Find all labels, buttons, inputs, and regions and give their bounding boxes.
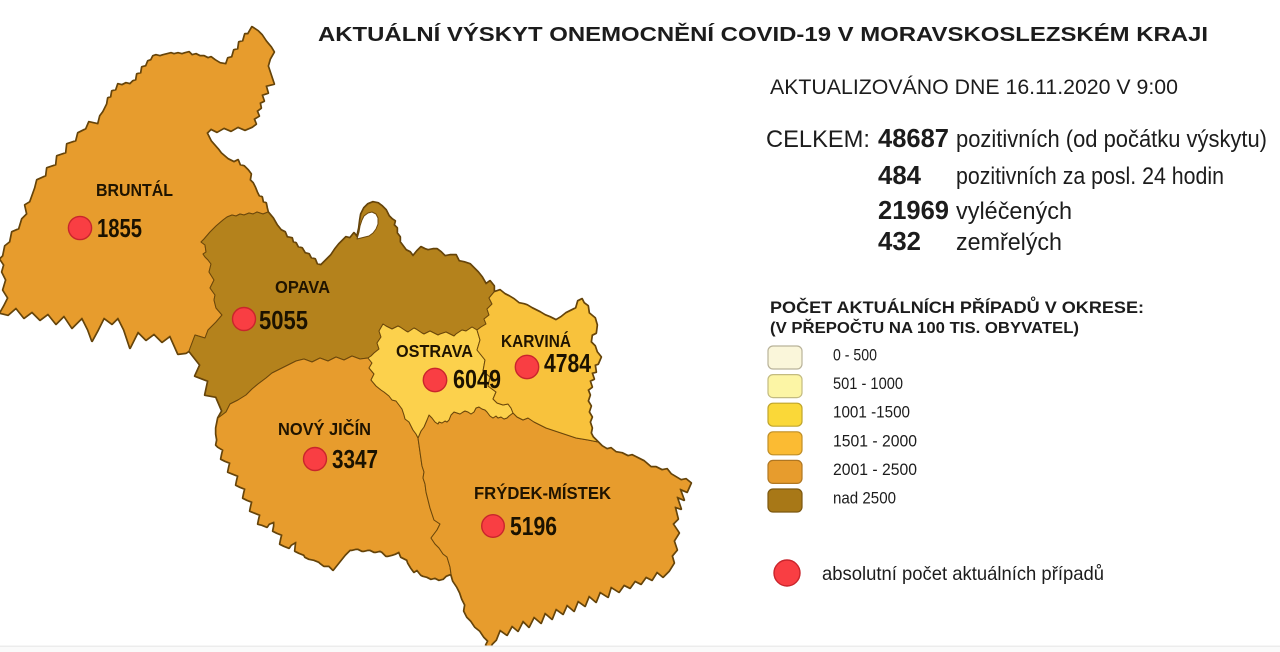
svg-text:OSTRAVA: OSTRAVA: [396, 341, 473, 361]
svg-text:21969: 21969: [878, 195, 949, 225]
svg-text:vyléčených: vyléčených: [956, 198, 1072, 225]
svg-text:zemřelých: zemřelých: [956, 229, 1062, 256]
svg-text:FRÝDEK-MÍSTEK: FRÝDEK-MÍSTEK: [474, 482, 611, 503]
svg-text:OPAVA: OPAVA: [275, 277, 330, 297]
svg-text:AKTUALIZOVÁNO DNE 16.11.2020 V: AKTUALIZOVÁNO DNE 16.11.2020 V 9:00: [770, 74, 1178, 99]
svg-text:484: 484: [878, 160, 922, 190]
svg-text:4784: 4784: [544, 348, 591, 378]
svg-text:1001 -1500: 1001 -1500: [833, 403, 910, 422]
svg-text:pozitivních (od počátku výskyt: pozitivních (od počátku výskytu): [956, 126, 1267, 153]
svg-text:1855: 1855: [97, 213, 142, 243]
svg-text:432: 432: [878, 226, 921, 256]
svg-text:CELKEM:: CELKEM:: [766, 126, 870, 153]
svg-text:48687: 48687: [878, 123, 949, 153]
svg-text:0 - 500: 0 - 500: [833, 346, 877, 365]
svg-text:pozitivních za posl. 24 hodin: pozitivních za posl. 24 hodin: [956, 163, 1224, 190]
svg-text:POČET AKTUÁLNÍCH PŘÍPADŮ V OKR: POČET AKTUÁLNÍCH PŘÍPADŮ V OKRESE:: [770, 297, 1144, 317]
svg-text:2001 - 2500: 2001 - 2500: [833, 460, 917, 479]
svg-text:nad 2500: nad 2500: [833, 489, 896, 508]
svg-text:BRUNTÁL: BRUNTÁL: [96, 179, 173, 200]
svg-text:absolutní počet aktuálních pří: absolutní počet aktuálních případů: [822, 563, 1104, 585]
svg-text:AKTUÁLNÍ VÝSKYT ONEMOCNĚNÍ COV: AKTUÁLNÍ VÝSKYT ONEMOCNĚNÍ COVID-19 V MO…: [318, 22, 1208, 46]
svg-text:6049: 6049: [453, 364, 501, 394]
svg-text:NOVÝ JIČÍN: NOVÝ JIČÍN: [278, 418, 371, 439]
svg-text:1501 - 2000: 1501 - 2000: [833, 431, 917, 450]
svg-text:501 - 1000: 501 - 1000: [833, 374, 903, 393]
svg-text:5055: 5055: [259, 305, 308, 335]
svg-text:3347: 3347: [332, 444, 378, 474]
svg-text:5196: 5196: [510, 511, 557, 541]
svg-text:(V PŘEPOČTU NA 100 TIS. OBYVAT: (V PŘEPOČTU NA 100 TIS. OBYVATEL): [770, 319, 1079, 337]
